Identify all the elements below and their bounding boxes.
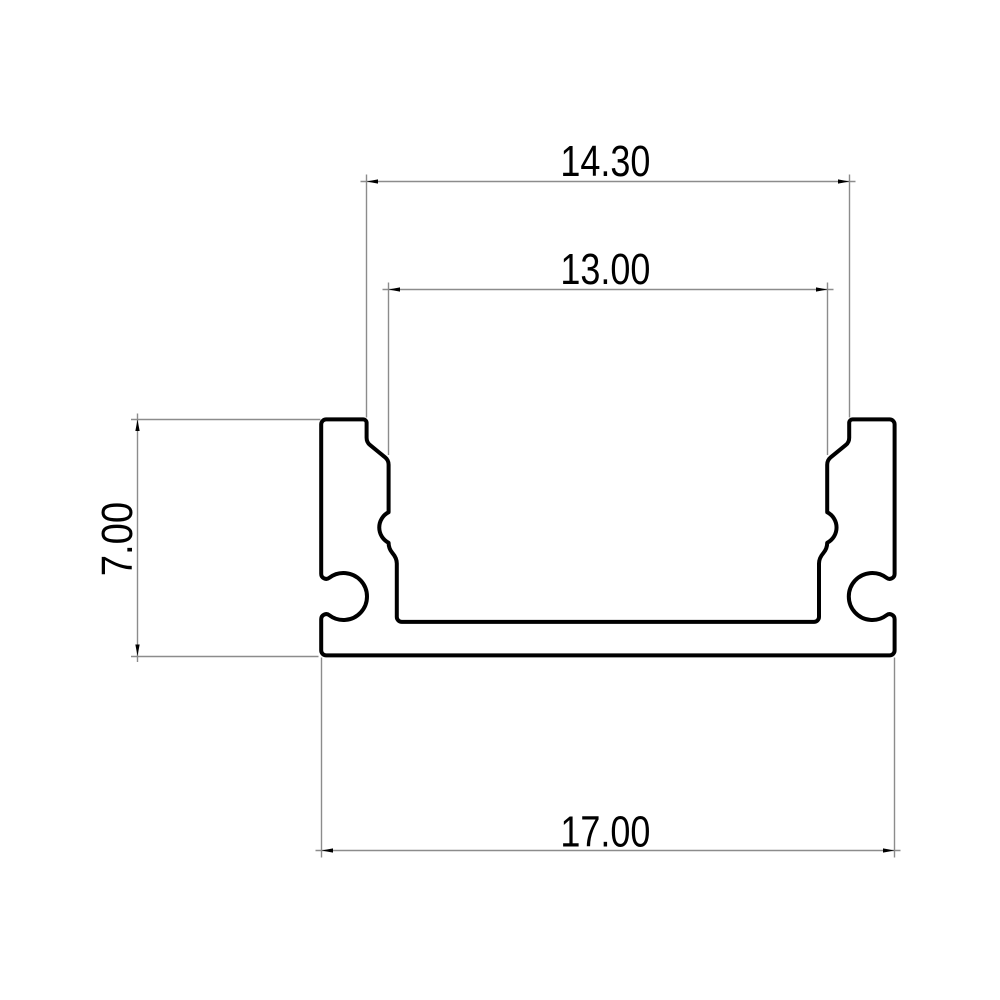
svg-text:17.00: 17.00	[560, 807, 650, 856]
svg-text:13.00: 13.00	[560, 245, 650, 294]
svg-text:7.00: 7.00	[93, 502, 142, 577]
svg-text:14.30: 14.30	[560, 137, 650, 186]
